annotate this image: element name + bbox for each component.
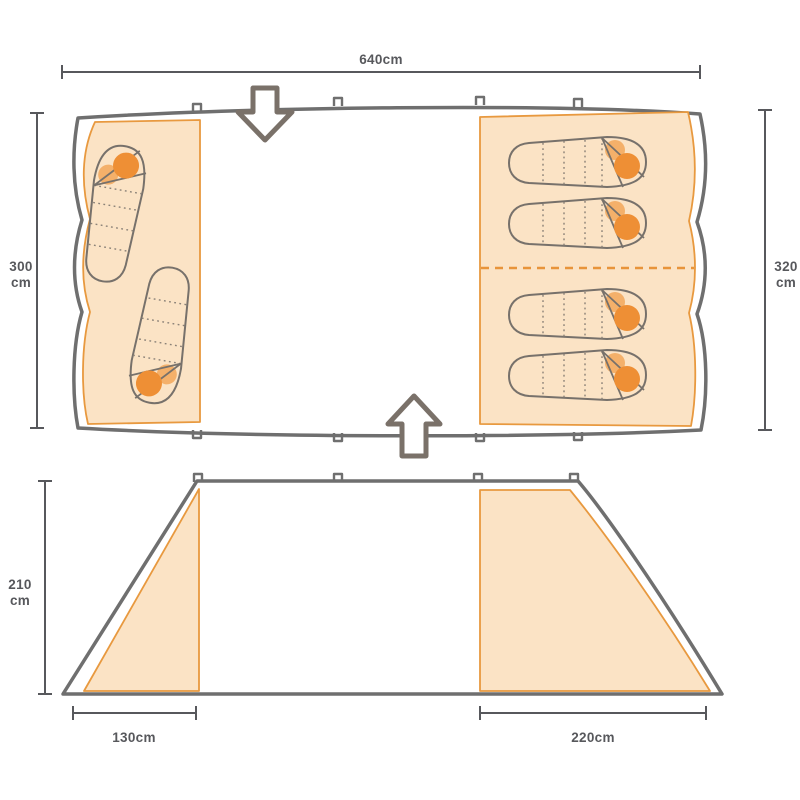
left-section-dimension: 130cm <box>73 706 196 745</box>
tent-dimensions-diagram: 640cm <box>0 0 800 800</box>
sleeping-bag <box>509 198 646 248</box>
height-value: 210 <box>8 577 31 592</box>
sleeping-bag <box>509 350 646 400</box>
right-depth-value: 320 <box>774 259 797 274</box>
right-depth-unit: cm <box>776 275 796 290</box>
left-section-label: 130cm <box>112 730 156 745</box>
height-dimension: 210 cm <box>8 481 52 694</box>
left-depth-dimension: 300 cm <box>9 113 44 428</box>
left-depth-unit: cm <box>11 275 31 290</box>
right-depth-dimension: 320 cm <box>758 110 798 430</box>
sleeping-bag <box>509 137 646 187</box>
height-unit: cm <box>10 593 30 608</box>
left-depth-value: 300 <box>9 259 32 274</box>
diagram-canvas: 640cm <box>0 0 800 800</box>
width-dimension-label: 640cm <box>359 52 403 67</box>
right-section-label: 220cm <box>571 730 615 745</box>
floor-plan-top-view: 640cm <box>9 52 797 456</box>
right-section-dimension: 220cm <box>480 706 706 745</box>
sleeping-bag <box>509 289 646 339</box>
left-porch-panel <box>84 489 199 691</box>
side-elevation-view: 210 cm 130cm 220cm <box>8 474 722 745</box>
width-dimension: 640cm <box>62 52 700 79</box>
